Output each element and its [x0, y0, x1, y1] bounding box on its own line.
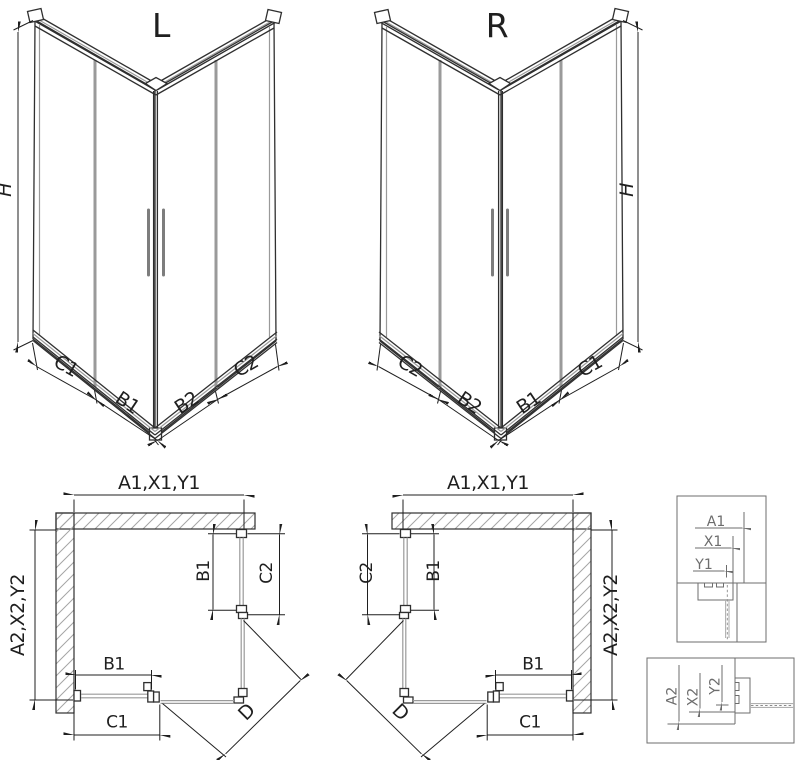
- technical-drawing-sheet: L H C1 B1 B2 C2 R H C2 B2 B1 C1 A1,X1,Y1…: [0, 0, 800, 760]
- plan-l-bottom-panel-label: C1: [106, 713, 128, 733]
- height-dimension: [14, 21, 34, 351]
- iso-l-height-label: H: [0, 183, 16, 197]
- iso-l-title: L: [152, 6, 171, 45]
- diagonal-entry-dimension: [163, 621, 302, 758]
- plan-left-walls: [56, 513, 255, 713]
- plan-right-walls: [392, 513, 591, 713]
- shower-enclosure-diagram: L H C1 B1 B2 C2 R H C2 B2 B1 C1 A1,X1,Y1…: [0, 0, 800, 760]
- plan-r-bottom-panel-label: C1: [519, 713, 541, 733]
- plan-r-bottom-door-label: B1: [522, 655, 543, 675]
- detail-x2-label: X2: [686, 688, 702, 707]
- plan-l-bottom-door-label: B1: [103, 655, 124, 675]
- plan-r-width-label: A1,X1,Y1: [447, 472, 529, 494]
- plan-l-side-door-label: B1: [194, 560, 214, 581]
- plan-l-depth-label: A2,X2,Y2: [7, 574, 29, 656]
- plan-l-width-label: A1,X1,Y1: [118, 472, 200, 494]
- plan-r-depth-label: A2,X2,Y2: [600, 574, 622, 656]
- plan-l-side-panel-label: C2: [257, 562, 277, 584]
- plan-r-side-panel-label: C2: [357, 562, 377, 584]
- detail-x1-label: X1: [704, 534, 723, 550]
- plan-r-side-door-label: B1: [424, 560, 444, 581]
- side-panel-and-door: [161, 530, 248, 704]
- detail-labels: A1 X1 Y1 A2 X2 Y2: [665, 514, 726, 706]
- detail-y1-label: Y1: [694, 557, 712, 573]
- detail-a2-label: A2: [665, 687, 681, 705]
- iso-r-height-label: H: [616, 183, 638, 197]
- detail-y2-label: Y2: [708, 677, 724, 695]
- iso-r-title: R: [486, 6, 508, 45]
- bottom-door: [74, 683, 159, 702]
- detail-a1-label: A1: [707, 514, 725, 530]
- plan-left-labels: A1,X1,Y1 A2,X2,Y2 B1 C2 B1 C1 D: [7, 472, 277, 733]
